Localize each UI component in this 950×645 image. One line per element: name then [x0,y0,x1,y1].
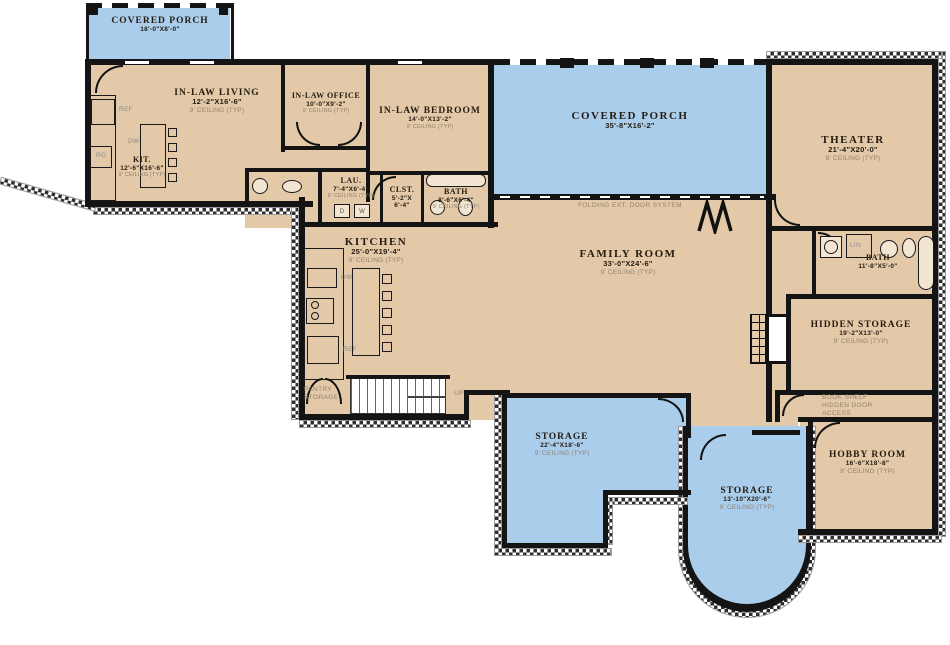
window-slit [398,61,422,64]
wall [346,375,450,379]
wall [302,222,498,227]
room-label-clst: CLST. 5'-2"X 6'-4" [384,186,420,210]
inlaw-refrigerator [91,99,115,125]
room-dims: 18'-0"X8'-0" [108,26,212,33]
room-label-storage-s: STORAGE 13'-10"X20'-6" 9' CEILING (TYP) [690,486,804,512]
wall [603,490,608,548]
hatch-strip [766,51,942,59]
room-dims: 35'-8"X16'-2" [538,122,722,131]
hatch-strip [494,393,502,551]
dishwasher [307,268,337,288]
room-fill-storage-w-lower [505,493,603,543]
room-label-bath-main: BATH 11'-8"X5'-0" [838,254,918,270]
range [306,298,334,324]
room-dims: 22'-4"X18'-6" [502,442,622,449]
hatch-strip [299,420,471,428]
kitchen-island [352,268,380,356]
wall [775,390,780,422]
fireplace-hearth [750,314,766,364]
room-name: HIDDEN STORAGE [792,320,930,330]
porch-post [560,58,574,68]
room-ceiling: 9' CEILING (TYP) [424,204,488,211]
wall-inlaw-bottom [85,201,313,207]
wall [686,393,691,438]
room-name: STORAGE [690,486,804,496]
wall-theater-right [932,59,938,234]
hatch-strip [93,207,305,215]
wall [766,194,772,316]
note-up: UP [449,390,469,397]
hatch-strip [798,535,942,543]
bar-stool [382,291,392,301]
room-label-hobby: HOBBY ROOM 16'-6"X18'-8" 9' CEILING (TYP… [800,450,935,476]
room-label-pantry: PANTRY STORAGE [304,386,358,403]
refrigerator [307,336,339,364]
hatch-strip [494,548,612,556]
room-label-bath-hall: BATH 8'-6"X6'-4" 9' CEILING (TYP) [424,188,488,211]
room-name: COVERED PORCH [108,16,212,26]
wall [502,543,608,548]
room-ceiling: 9' CEILING (TYP) [286,108,366,115]
room-dims: 11'-8"X5'-0" [838,263,918,270]
bar-stool [168,128,177,137]
wall [505,393,691,398]
room-dims: 21'-4"X20'-0" [788,146,918,155]
room-name: KIT. [96,156,188,165]
wall [766,226,938,231]
wall-porch-nw-top [86,3,234,8]
wall [502,393,507,548]
porch-post [89,6,98,15]
bar-stool [382,308,392,318]
washer-icon: W [354,204,370,218]
room-dims: 10'-0"X9'-2" [286,101,366,108]
room-label-family-room: FAMILY ROOM 33'-0"X24'-6" 9' CEILING (TY… [528,248,728,277]
wall [603,490,691,495]
wall [766,59,772,200]
wall [808,422,813,534]
wall [788,294,938,299]
hatch-strip [610,497,688,505]
room-name: HOBBY ROOM [800,450,935,460]
note-book-shelf: BOOK SHELF HIDDEN DOOR ACCESS [822,394,888,418]
linen-label: LIN [850,242,861,249]
room-label-lau: LAU. 7'-4"X6'-4" 9' CEILING (TYP) [322,177,380,200]
room-ceiling: 9' CEILING (TYP) [376,124,484,131]
sink-bowl-icon [824,240,838,254]
dryer-icon: D [334,204,350,218]
window-slit [190,61,214,64]
room-fill-porch-nw [88,6,230,62]
room-name: BATH [838,254,918,263]
room-label-theater: THEATER 21'-4"X20'-0" 9' CEILING (TYP) [788,134,918,163]
room-label-storage-w: STORAGE 22'-4"X18'-6" 9' CEILING (TYP) [502,432,622,458]
room-dims: 33'-0"X24'-6" [528,260,728,269]
room-dims: 12'-6"X16'-6" [96,165,188,172]
room-label-hidden-storage: HIDDEN STORAGE 19'-2"X13'-0" 9' CEILING … [792,320,930,346]
room-ceiling: 9' CEILING (TYP) [306,257,446,265]
wall [766,364,772,422]
room-dims: 14'-0"X13'-2" [376,116,484,123]
wall [752,430,800,435]
room-dims: 8'-6"X6'-4" [424,197,488,204]
room-ceiling: 9' CEILING (TYP) [502,450,622,458]
room-dims: 25'-0"X19'-4" [306,248,446,257]
porch-post [700,58,714,68]
porch-post [219,6,228,15]
room-label-porch-nw: COVERED PORCH 18'-0"X8'-0" [108,16,212,34]
bar-stool [382,274,392,284]
wall [786,294,791,394]
burner-icon [311,312,319,320]
wall [245,168,249,205]
toilet-icon [252,178,268,194]
room-dims: 16'-6"X18'-8" [800,460,935,467]
wall [812,230,816,296]
room-dims: 19'-2"X13'-0" [792,330,930,337]
wall-theater-top [766,59,938,65]
room-name: IN-LAW BEDROOM [376,106,484,116]
note-folding-door: FOLDING EXT. DOOR SYSTEM [520,202,740,209]
wall-hobby-bottom [798,529,938,535]
wall [231,3,234,63]
wall [281,146,370,150]
room-label-kitchen: KITCHEN 25'-0"X19'-4" 9' CEILING (TYP) [306,236,446,265]
wall [488,59,494,228]
room-ceiling: 9' CEILING (TYP) [96,172,188,179]
wall [281,62,285,152]
room-ceiling: 9' CEILING (TYP) [528,269,728,277]
room-name: STORAGE [502,432,622,442]
window-slit [125,61,149,64]
room-label-in-law-office: IN-LAW OFFICE 10'-0"X9'-2" 9' CEILING (T… [286,92,366,115]
hatch-strip [938,51,946,537]
room-dims: 5'-2"X 6'-4" [384,195,420,210]
room-ceiling: 9' CEILING (TYP) [792,338,930,346]
stair-arrow [408,396,446,398]
room-dims: 12'-2"X16'-6" [158,98,276,107]
wall [245,168,370,172]
room-label-in-law-bedroom: IN-LAW BEDROOM 14'-0"X13'-2" 9' CEILING … [376,106,484,131]
room-label-in-law-living: IN-LAW LIVING 12'-2"X16'-6" 9' CEILING (… [158,88,276,115]
room-ceiling: 9' CEILING (TYP) [322,193,380,200]
bar-stool [382,342,392,352]
wall-porch-n-top [494,59,770,65]
room-ceiling: 9' CEILING (TYP) [788,155,918,163]
room-dims: 7'-4"X6'-4" [322,186,380,193]
room-fill-bath-hallway [770,230,815,296]
floor-plan: DW REF REF RG DW D W LIN COVERED PORCH 1… [0,0,950,645]
room-label-kit: KIT. 12'-6"X16'-6" 9' CEILING (TYP) [96,156,188,179]
room-name: BATH [424,188,488,197]
room-ceiling: 9' CEILING (TYP) [800,468,935,476]
hatch-retaining-wall [0,177,97,212]
porch-post [640,58,654,68]
bar-stool [168,143,177,152]
tub-icon [426,174,486,187]
washer-label: W [359,209,365,215]
room-name: LAU. [322,177,380,186]
wall-stairs-bottom [299,414,469,420]
room-ceiling: 9' CEILING (TYP) [690,504,804,512]
dishwasher-label: DW [341,274,352,281]
room-label-porch-n: COVERED PORCH 35'-8"X16'-2" [538,110,722,131]
room-ceiling: 9' CEILING (TYP) [158,107,276,115]
hatch-strip [291,207,299,420]
folding-door-glazing [500,196,764,198]
room-dims: 13'-10"X20'-6" [690,496,804,503]
dishwasher-label: DW [128,138,139,145]
room-name: IN-LAW OFFICE [286,92,366,101]
bar-stool [382,325,392,335]
burner-icon [311,301,319,309]
refrigerator-label: REF [119,106,133,113]
dryer-label: D [340,209,344,215]
sink-icon [282,180,302,193]
tub-icon [918,236,934,290]
room-name: CLST. [384,186,420,195]
